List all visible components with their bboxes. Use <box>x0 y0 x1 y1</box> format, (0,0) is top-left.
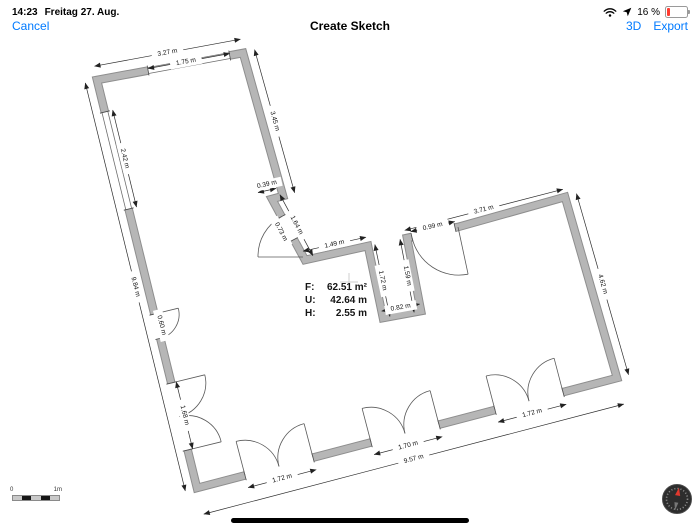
height-value: 2.55 m <box>336 307 367 320</box>
area-value: 62.51 m² <box>327 281 367 294</box>
height-label: H: <box>305 307 316 320</box>
perimeter-value: 42.64 m <box>330 294 367 307</box>
door-swings[interactable] <box>154 217 563 476</box>
area-label: F: <box>305 281 314 294</box>
scale-start-label: 0 <box>10 487 13 493</box>
scale-end-label: 1m <box>54 487 62 493</box>
scale-bar: 0 1m <box>12 487 58 501</box>
compass[interactable] <box>661 483 693 515</box>
measurement-info-panel: F: 62.51 m² U: 42.64 m H: 2.55 m <box>305 281 367 320</box>
dim-label-3-27[interactable]: 3.27 m <box>151 45 184 60</box>
dimension-labels: 3.27 m 1.75 m 2.42 m 9.84 m 0.60 m 1.68 … <box>116 45 611 487</box>
scale-bar-graphic <box>12 495 60 501</box>
app-screen: 14:23 Freitag 27. Aug. 16 % Cancel Creat… <box>0 0 700 525</box>
floor-plan-canvas[interactable]: 3.27 m 1.75 m 2.42 m 9.84 m 0.60 m 1.68 … <box>0 0 700 525</box>
home-indicator[interactable] <box>231 518 469 523</box>
door-jambs <box>150 215 565 481</box>
perimeter-row: U: 42.64 m <box>305 294 367 307</box>
wall-outline[interactable] <box>97 53 617 488</box>
area-row: F: 62.51 m² <box>305 281 367 294</box>
height-row: H: 2.55 m <box>305 307 367 320</box>
perimeter-label: U: <box>305 294 316 307</box>
dim-label-9-57[interactable]: 9.57 m <box>397 451 430 468</box>
